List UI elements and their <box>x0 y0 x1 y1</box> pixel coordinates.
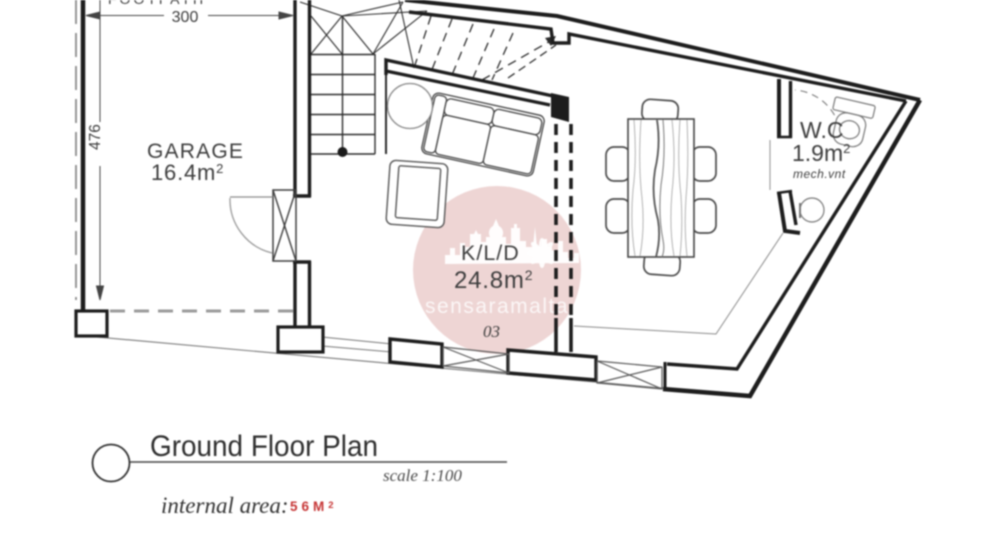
svg-text:24.8m2: 24.8m2 <box>454 267 533 294</box>
svg-text:03: 03 <box>483 322 500 341</box>
svg-text:mech.vnt: mech.vnt <box>793 167 846 181</box>
svg-text:Ground Floor Plan: Ground Floor Plan <box>150 430 378 463</box>
svg-text:K/L/D: K/L/D <box>461 241 520 265</box>
svg-text:476: 476 <box>87 124 104 150</box>
svg-text:16.4m2: 16.4m2 <box>151 160 224 185</box>
svg-text:sensaramalta: sensaramalta <box>425 295 569 318</box>
svg-text:internal area:: internal area: <box>161 493 289 518</box>
svg-text:scale 1:100: scale 1:100 <box>383 466 462 485</box>
svg-text:300: 300 <box>172 9 199 26</box>
svg-text:FOOTPATH: FOOTPATH <box>108 0 206 7</box>
svg-text:1.9m2: 1.9m2 <box>792 140 850 166</box>
